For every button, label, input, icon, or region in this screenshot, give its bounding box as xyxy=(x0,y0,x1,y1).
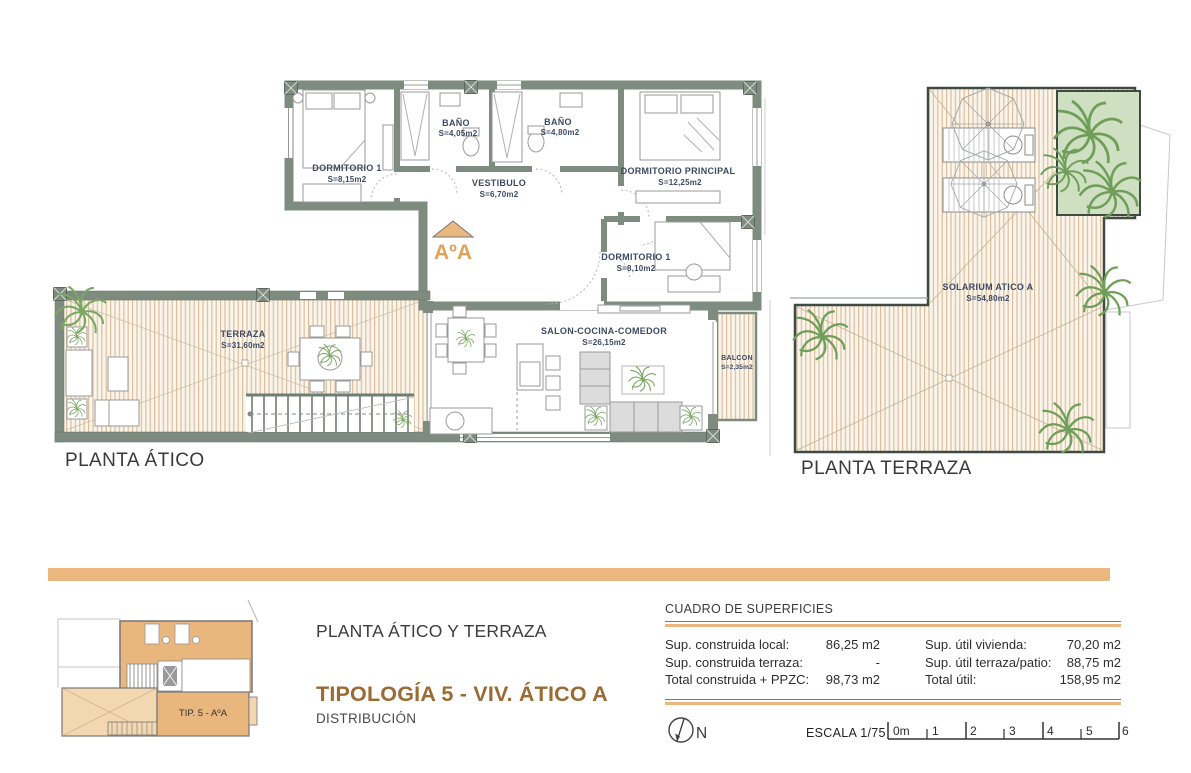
surfaces-right-column: Sup. útil vivienda: 70,20 m2 Sup. útil t… xyxy=(925,636,1121,689)
room-area: S=6,70m2 xyxy=(480,190,519,199)
typology-subtitle: DISTRIBUCIÓN xyxy=(316,711,416,726)
plan-terraza: SOLARIUM ATICO A S=54,80m2 xyxy=(790,88,1170,452)
table-row: Total construida + PPZC: 98,73 m2 xyxy=(665,671,880,689)
surfaces-table: CUADRO DE SUPERFICIES Sup. construida lo… xyxy=(665,602,1121,705)
room-area: S=8,15m2 xyxy=(328,175,367,184)
plan-atico: AºA DORMITORIO 1 S=8,15m2 BAÑO S=4,05m2 … xyxy=(54,81,771,457)
table-row: Sup. útil vivienda: 70,20 m2 xyxy=(925,636,1121,654)
table-row: Sup. útil terraza/patio: 88,75 m2 xyxy=(925,654,1121,672)
room-area: S=12,25m2 xyxy=(658,178,702,187)
stairs xyxy=(246,395,414,433)
divider xyxy=(665,621,1121,622)
sun-lounger xyxy=(943,178,1035,212)
room-area: S=8,10m2 xyxy=(617,264,656,273)
scale-tick: 0m xyxy=(893,724,910,738)
room-label: DORMITORIO 1 xyxy=(601,252,670,262)
row-label: Sup. construida terraza: xyxy=(665,654,803,672)
row-value: 86,25 m2 xyxy=(826,636,880,654)
typology-title: TIPOLOGÍA 5 - VIV. ÁTICO A xyxy=(316,682,608,707)
accent-bar xyxy=(48,568,1110,581)
key-plan-thumbnail: TIP. 5 - AºA xyxy=(58,600,258,736)
room-area: S=4,80m2 xyxy=(541,128,580,137)
room-area: S=26,15m2 xyxy=(582,338,626,347)
row-label: Total construida + PPZC: xyxy=(665,671,809,689)
room-label: DORMITORIO 1 xyxy=(312,163,381,173)
row-value: - xyxy=(876,654,880,672)
room-area: S=31,60m2 xyxy=(221,341,265,350)
plan-title: PLANTA ÁTICO Y TERRAZA xyxy=(316,621,547,642)
scale-tick: 2 xyxy=(970,724,977,738)
row-label: Sup. útil terraza/patio: xyxy=(925,654,1051,672)
room-label: SALON-COCINA-COMEDOR xyxy=(541,326,667,336)
umbrella xyxy=(952,88,1024,160)
umbrella xyxy=(951,151,1017,217)
scale-label: ESCALA 1/75 xyxy=(806,726,886,740)
room-label: BAÑO xyxy=(442,118,470,128)
floor-plan-sheet: AºA DORMITORIO 1 S=8,15m2 BAÑO S=4,05m2 … xyxy=(0,0,1191,773)
north-label: N xyxy=(696,725,707,742)
section-marker-label: AºA xyxy=(434,241,472,264)
room-label: DORMITORIO PRINCIPAL xyxy=(621,166,736,176)
caption-planta-atico: PLANTA ÁTICO xyxy=(65,450,205,472)
divider xyxy=(665,699,1121,700)
scale-tick: 5 xyxy=(1086,724,1093,738)
room-label: BALCON xyxy=(721,355,753,362)
room-area: S=4,05m2 xyxy=(439,129,478,138)
row-value: 88,75 m2 xyxy=(1067,654,1121,672)
north-arrow: N xyxy=(669,718,707,742)
row-value: 158,95 m2 xyxy=(1060,671,1121,689)
scale-tick: 4 xyxy=(1047,724,1054,738)
table-row: Sup. construida local: 86,25 m2 xyxy=(665,636,880,654)
scale-tick: 3 xyxy=(1009,724,1016,738)
furniture-salon xyxy=(430,305,702,434)
row-label: Sup. construida local: xyxy=(665,636,789,654)
room-label: TERRAZA xyxy=(220,329,265,339)
table-row: Sup. construida terraza: - xyxy=(665,654,880,672)
row-value: 98,73 m2 xyxy=(826,671,880,689)
room-label: SOLARIUM ATICO A xyxy=(943,282,1034,292)
row-value: 70,20 m2 xyxy=(1067,636,1121,654)
scale-tick: 1 xyxy=(932,724,939,738)
table-row: Total útil: 158,95 m2 xyxy=(925,671,1121,689)
surfaces-heading: CUADRO DE SUPERFICIES xyxy=(665,602,1121,616)
surfaces-left-column: Sup. construida local: 86,25 m2 Sup. con… xyxy=(665,636,880,689)
sun-lounger xyxy=(943,128,1035,162)
thumbnail-label: TIP. 5 - AºA xyxy=(179,708,228,719)
room-area: S=2,35m2 xyxy=(721,364,753,371)
room-area: S=54,80m2 xyxy=(966,294,1010,303)
room-label: BAÑO xyxy=(544,117,572,127)
room-label: VESTIBULO xyxy=(472,178,526,188)
scale-tick: 6 xyxy=(1122,724,1129,738)
caption-planta-terraza: PLANTA TERRAZA xyxy=(801,458,972,480)
row-label: Sup. útil vivienda: xyxy=(925,636,1027,654)
row-label: Total útil: xyxy=(925,671,976,689)
divider-accent xyxy=(665,702,1121,705)
scale-bar: 0m 1 2 3 4 5 6 xyxy=(888,722,1129,739)
